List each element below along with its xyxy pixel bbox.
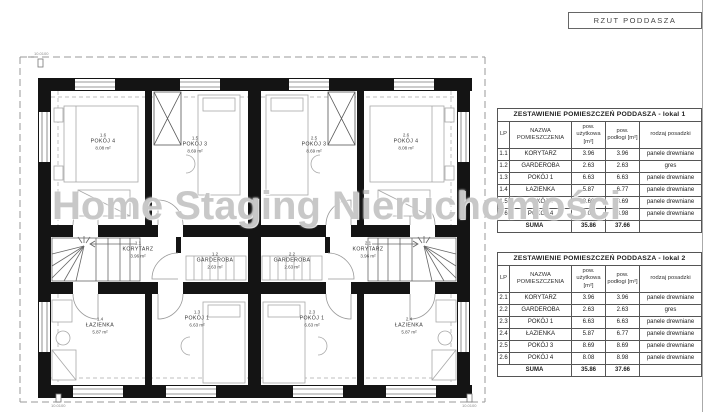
room-label: 2.3POKÓJ 16.63 m² — [300, 309, 325, 328]
table-cell: panele drewniane — [640, 209, 702, 221]
suma-floor: 37.66 — [606, 221, 640, 233]
table-cell: 2.3 — [498, 317, 510, 329]
col-header-lp: LP — [498, 266, 510, 293]
room-area: 5.87 m² — [395, 330, 423, 336]
table-cell: 8.98 — [606, 353, 640, 365]
table-row: 2.4ŁAZIENKA5.876.77panele drewniane — [498, 329, 702, 341]
suma-usable: 35.86 — [572, 365, 606, 377]
table-cell: 3.96 — [572, 149, 606, 161]
table-row: 2.5POKÓJ 38.698.69panele drewniane — [498, 341, 702, 353]
table-cell: 8.69 — [606, 197, 640, 209]
table-cell: 2.63 — [606, 161, 640, 173]
table-cell: 1.2 — [498, 161, 510, 173]
table-cell: panele drewniane — [640, 185, 702, 197]
col-header-finish: rodzaj posadzki — [640, 266, 702, 293]
room-area: 8.08 m² — [394, 146, 419, 152]
table-cell: 6.63 — [606, 173, 640, 185]
suma-usable: 35.86 — [572, 221, 606, 233]
table-cell: GARDEROBA — [510, 305, 572, 317]
room-name: GARDEROBA — [197, 257, 234, 264]
room-label: 2.4ŁAZIENKA5.87 m² — [395, 316, 423, 335]
title-block: RZUT PODDASZA — [568, 12, 702, 29]
room-name: ŁAZIENKA — [86, 322, 114, 329]
table-row: 1.6POKÓJ 48.088.98panele drewniane — [498, 209, 702, 221]
room-label: 2.2GARDEROBA2.63 m² — [274, 251, 311, 270]
room-schedule-table-lokal-1: ZESTAWIENIE POMIESZCZEŃ PODDASZA - lokal… — [497, 108, 702, 233]
room-name: POKÓJ 3 — [302, 141, 327, 148]
table-cell: 8.08 — [572, 209, 606, 221]
table-cell: gres — [640, 161, 702, 173]
survey-mark-label-top: 10.0100 — [34, 51, 48, 56]
table-cell: 3.96 — [606, 149, 640, 161]
room-name: POKÓJ 4 — [91, 138, 116, 145]
room-label: 1.1KORYTARZ3.96 m² — [123, 240, 154, 259]
table-row: 2.6POKÓJ 48.088.98panele drewniane — [498, 353, 702, 365]
suma-floor: 37.66 — [606, 365, 640, 377]
room-name: POKÓJ 1 — [185, 315, 210, 322]
table-cell: panele drewniane — [640, 173, 702, 185]
room-area: 8.08 m² — [91, 146, 116, 152]
room-area: 2.63 m² — [274, 265, 311, 271]
table-cell: ŁAZIENKA — [510, 329, 572, 341]
col-header-usable-area: pow. użytkowa [m²] — [572, 122, 606, 149]
table-cell: 2.63 — [572, 161, 606, 173]
floor-plan-drawing — [18, 50, 488, 405]
suma-row: SUMA 35.86 37.66 — [498, 221, 702, 233]
table-row: 2.2GARDEROBA2.632.63gres — [498, 305, 702, 317]
table-cell: panele drewniane — [640, 197, 702, 209]
room-name: POKÓJ 3 — [183, 141, 208, 148]
suma-row: SUMA 35.86 37.66 — [498, 365, 702, 377]
room-label: 2.5POKÓJ 38.69 m² — [302, 135, 327, 154]
suma-empty — [640, 365, 702, 377]
table-cell: panele drewniane — [640, 317, 702, 329]
suma-label: SUMA — [498, 221, 572, 233]
room-area: 6.63 m² — [185, 323, 210, 329]
room-label: 1.6POKÓJ 48.08 m² — [91, 132, 116, 151]
table-cell: panele drewniane — [640, 329, 702, 341]
table-cell: 2.2 — [498, 305, 510, 317]
drawing-sheet: RZUT PODDASZA — [0, 0, 710, 412]
table-cell: GARDEROBA — [510, 161, 572, 173]
table-cell: 8.69 — [606, 341, 640, 353]
table-cell: 2.5 — [498, 341, 510, 353]
table-cell: 6.77 — [606, 329, 640, 341]
table-cell: 2.63 — [572, 305, 606, 317]
room-area: 8.69 m² — [302, 149, 327, 155]
table-cell: 6.77 — [606, 185, 640, 197]
room-schedule-table-lokal-2: ZESTAWIENIE POMIESZCZEŃ PODDASZA - lokal… — [497, 252, 702, 377]
room-label: 1.4ŁAZIENKA5.87 m² — [86, 316, 114, 335]
room-name: ŁAZIENKA — [395, 322, 423, 329]
table-cell: POKÓJ 3 — [510, 197, 572, 209]
room-name: POKÓJ 1 — [300, 315, 325, 322]
col-header-name: NAZWA POMIESZCZENIA — [510, 122, 572, 149]
table-cell: 5.87 — [572, 329, 606, 341]
table-cell: 1.4 — [498, 185, 510, 197]
table-cell: ŁAZIENKA — [510, 185, 572, 197]
table-cell: 8.08 — [572, 353, 606, 365]
suma-label: SUMA — [498, 365, 572, 377]
table-cell: POKÓJ 1 — [510, 173, 572, 185]
col-header-floor-area: pow. podłogi [m²] — [606, 122, 640, 149]
suma-empty — [640, 221, 702, 233]
table-cell: 1.1 — [498, 149, 510, 161]
room-label: 2.1KORYTARZ3.96 m² — [353, 240, 384, 259]
table-title: ZESTAWIENIE POMIESZCZEŃ PODDASZA - lokal… — [498, 253, 702, 266]
table-cell: POKÓJ 4 — [510, 209, 572, 221]
room-area: 2.63 m² — [197, 265, 234, 271]
room-label: 1.5POKÓJ 38.69 m² — [183, 135, 208, 154]
col-header-name: NAZWA POMIESZCZENIA — [510, 266, 572, 293]
col-header-lp: LP — [498, 122, 510, 149]
table-row: 1.3POKÓJ 16.636.63panele drewniane — [498, 173, 702, 185]
room-label: 2.6POKÓJ 48.08 m² — [394, 132, 419, 151]
room-area: 8.69 m² — [183, 149, 208, 155]
table-cell: POKÓJ 1 — [510, 317, 572, 329]
table-cell: POKÓJ 4 — [510, 353, 572, 365]
table-cell: 8.98 — [606, 209, 640, 221]
sheet-frame-line — [702, 0, 703, 412]
table-cell: panele drewniane — [640, 353, 702, 365]
table-cell: 3.96 — [606, 293, 640, 305]
table-row: 1.2GARDEROBA2.632.63gres — [498, 161, 702, 173]
table-cell: 5.87 — [572, 185, 606, 197]
table-cell: 6.63 — [572, 317, 606, 329]
table-cell: panele drewniane — [640, 341, 702, 353]
room-label: 1.2GARDEROBA2.63 m² — [197, 251, 234, 270]
room-name: KORYTARZ — [353, 246, 384, 253]
table-cell: 8.69 — [572, 341, 606, 353]
room-area: 6.63 m² — [300, 323, 325, 329]
table-cell: 6.63 — [572, 173, 606, 185]
table-row: 1.4ŁAZIENKA5.876.77panele drewniane — [498, 185, 702, 197]
table-row: 1.1KORYTARZ3.963.96panele drewniane — [498, 149, 702, 161]
survey-mark-label-bottom-left: 10.0100 — [51, 403, 65, 408]
table-row: 2.1KORYTARZ3.963.96panele drewniane — [498, 293, 702, 305]
table-cell: 2.6 — [498, 353, 510, 365]
table-cell: 1.5 — [498, 197, 510, 209]
table-cell: panele drewniane — [640, 293, 702, 305]
table-cell: KORYTARZ — [510, 293, 572, 305]
room-name: GARDEROBA — [274, 257, 311, 264]
table-cell: 8.69 — [572, 197, 606, 209]
table-cell: KORYTARZ — [510, 149, 572, 161]
room-area: 3.96 m² — [123, 254, 154, 260]
col-header-finish: rodzaj posadzki — [640, 122, 702, 149]
table-cell: POKÓJ 3 — [510, 341, 572, 353]
room-name: KORYTARZ — [123, 246, 154, 253]
table-cell: 2.63 — [606, 305, 640, 317]
survey-mark-label-bottom-right: 10.0100 — [462, 403, 476, 408]
room-area: 5.87 m² — [86, 330, 114, 336]
table-cell: 2.4 — [498, 329, 510, 341]
table-row: 1.5POKÓJ 38.698.69panele drewniane — [498, 197, 702, 209]
room-name: POKÓJ 4 — [394, 138, 419, 145]
table-cell: panele drewniane — [640, 149, 702, 161]
table-cell: 2.1 — [498, 293, 510, 305]
table-title: ZESTAWIENIE POMIESZCZEŃ PODDASZA - lokal… — [498, 109, 702, 122]
col-header-usable-area: pow. użytkowa [m²] — [572, 266, 606, 293]
room-area: 3.96 m² — [353, 254, 384, 260]
table-cell: 1.3 — [498, 173, 510, 185]
room-label: 1.3POKÓJ 16.63 m² — [185, 309, 210, 328]
table-cell: 3.96 — [572, 293, 606, 305]
table-cell: 1.6 — [498, 209, 510, 221]
table-cell: gres — [640, 305, 702, 317]
floor-plan: 1.6POKÓJ 48.08 m²1.5POKÓJ 38.69 m²2.5POK… — [18, 50, 488, 405]
table-cell: 6.63 — [606, 317, 640, 329]
table-row: 2.3POKÓJ 16.636.63panele drewniane — [498, 317, 702, 329]
col-header-floor-area: pow. podłogi [m²] — [606, 266, 640, 293]
drawing-title: RZUT PODDASZA — [594, 16, 677, 25]
